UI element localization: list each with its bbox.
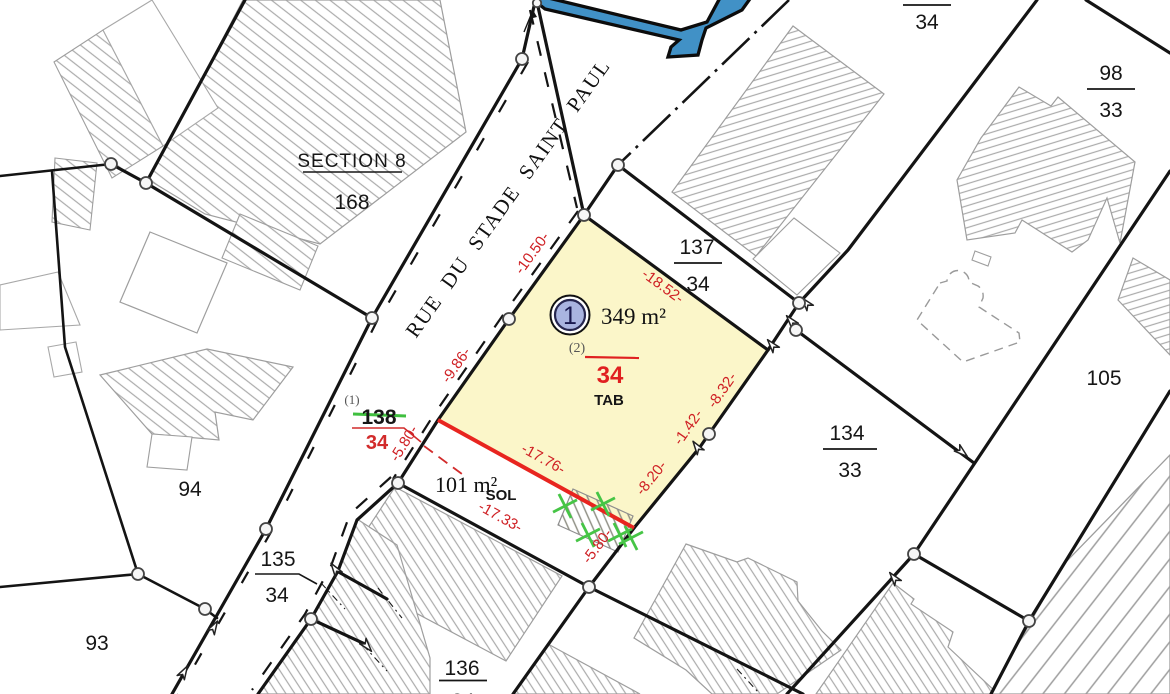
svg-text:136: 136 — [444, 657, 479, 680]
svg-text:94: 94 — [178, 478, 202, 501]
svg-text:134: 134 — [829, 422, 864, 445]
svg-text:1: 1 — [563, 302, 577, 330]
svg-text:105: 105 — [1086, 367, 1121, 390]
svg-text:34: 34 — [366, 432, 389, 454]
svg-text:34: 34 — [686, 273, 710, 296]
svg-text:TAB: TAB — [594, 392, 624, 409]
svg-text:(2): (2) — [569, 341, 586, 356]
svg-text:349 m²: 349 m² — [601, 304, 666, 329]
svg-text:(1): (1) — [344, 392, 359, 407]
svg-text:34: 34 — [915, 11, 939, 34]
svg-text:33: 33 — [1099, 99, 1122, 122]
svg-text:135: 135 — [260, 548, 295, 571]
svg-text:138: 138 — [361, 406, 396, 429]
svg-text:137: 137 — [679, 236, 714, 259]
svg-text:34: 34 — [265, 584, 289, 607]
svg-text:168: 168 — [334, 191, 369, 214]
svg-text:93: 93 — [85, 632, 108, 655]
svg-text:SECTION 8: SECTION 8 — [297, 151, 406, 172]
svg-text:34: 34 — [451, 690, 475, 694]
svg-text:34: 34 — [597, 362, 624, 389]
svg-text:33: 33 — [838, 459, 861, 482]
svg-text:98: 98 — [1099, 62, 1122, 85]
